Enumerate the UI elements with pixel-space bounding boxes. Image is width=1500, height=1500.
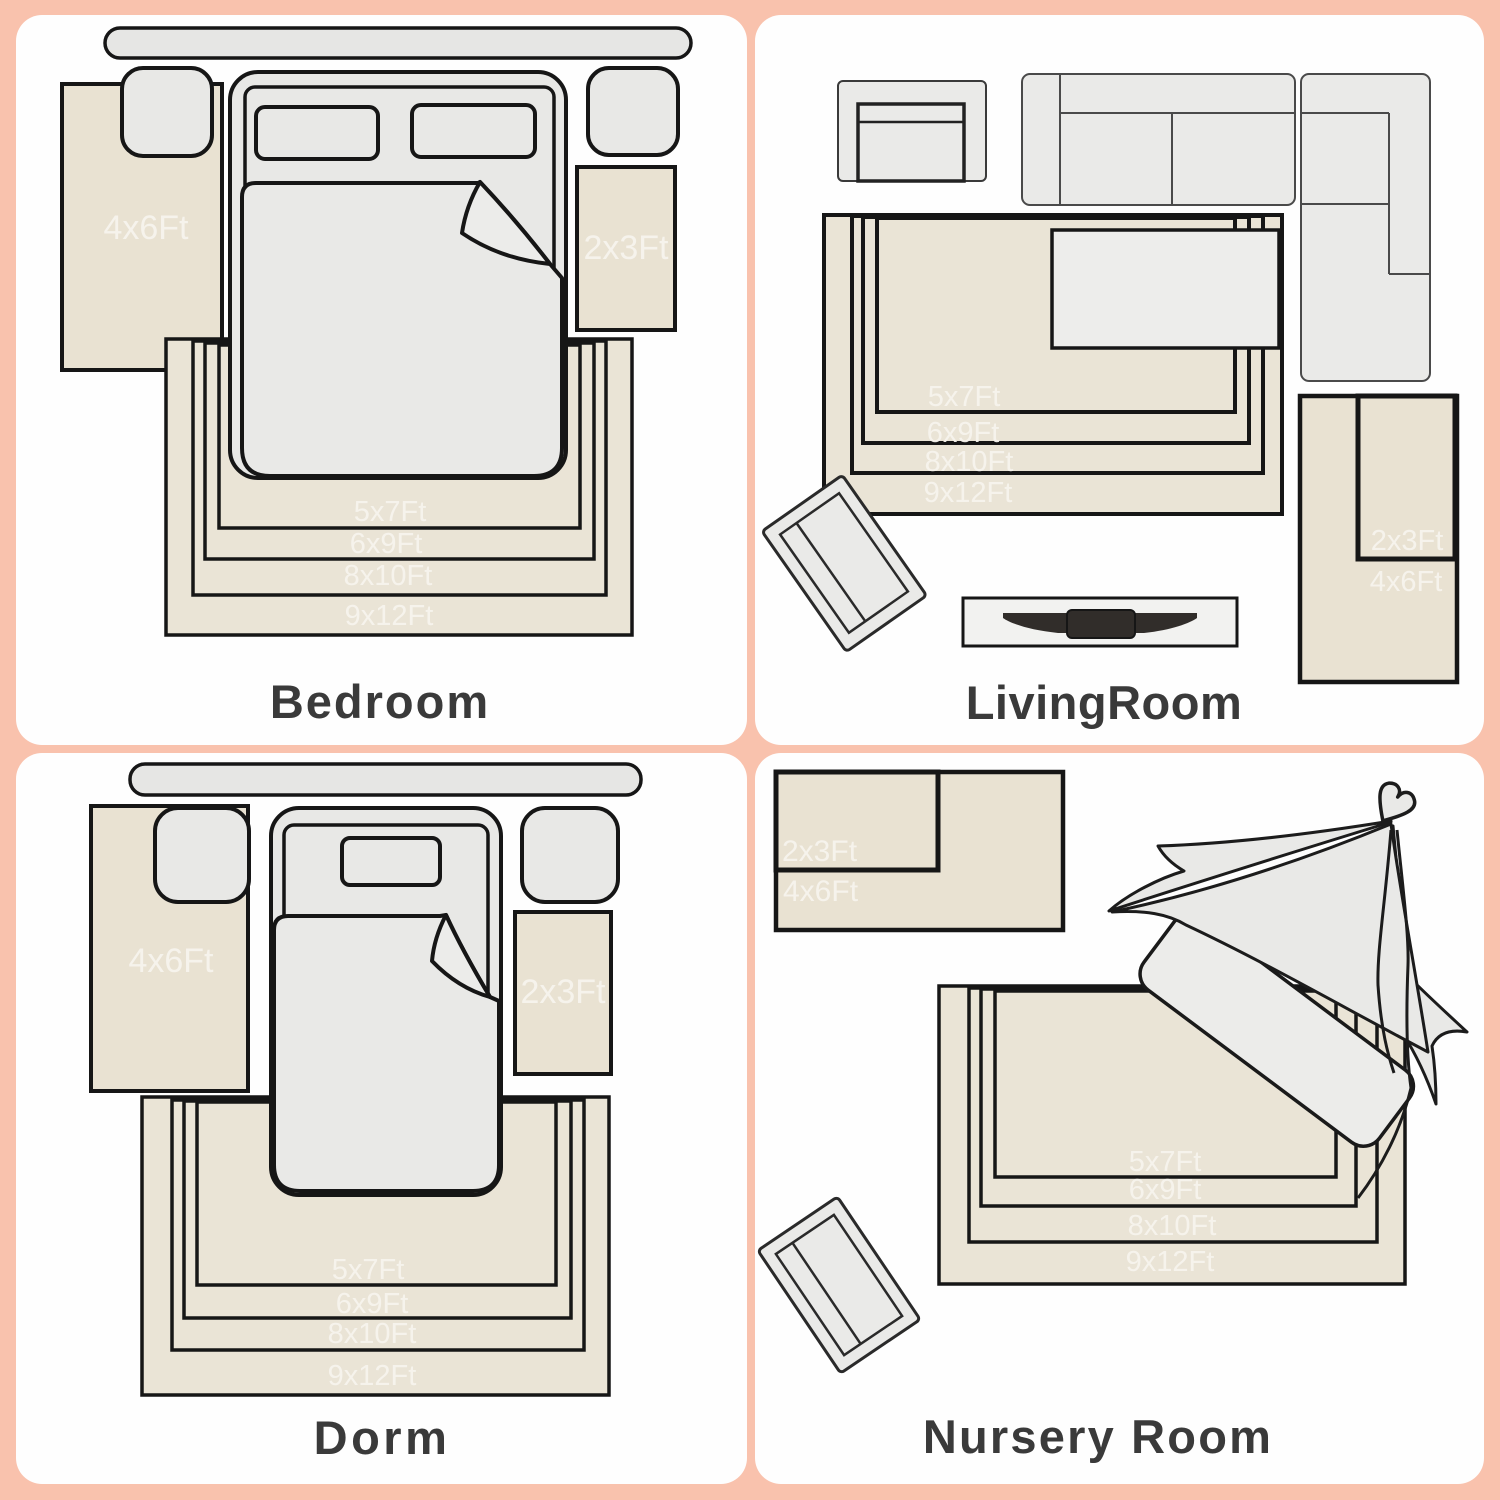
svg-text:6x9Ft: 6x9Ft (1129, 1174, 1202, 1206)
svg-text:4x6Ft: 4x6Ft (103, 209, 189, 247)
svg-text:2x3Ft: 2x3Ft (782, 835, 858, 868)
svg-text:6x9Ft: 6x9Ft (336, 1288, 409, 1320)
svg-text:6x9Ft: 6x9Ft (350, 528, 423, 560)
svg-text:8x10Ft: 8x10Ft (344, 560, 433, 592)
svg-text:2x3Ft: 2x3Ft (1371, 525, 1444, 557)
svg-text:9x12Ft: 9x12Ft (1126, 1246, 1215, 1278)
svg-text:Bedroom: Bedroom (270, 675, 490, 728)
svg-text:8x10Ft: 8x10Ft (925, 446, 1014, 478)
svg-text:9x12Ft: 9x12Ft (328, 1360, 417, 1392)
svg-text:LivingRoom: LivingRoom (966, 676, 1243, 729)
svg-text:4x6Ft: 4x6Ft (783, 875, 859, 908)
svg-text:2x3Ft: 2x3Ft (583, 229, 669, 267)
svg-text:5x7Ft: 5x7Ft (332, 1254, 405, 1286)
svg-text:4x6Ft: 4x6Ft (1370, 566, 1443, 598)
svg-text:9x12Ft: 9x12Ft (924, 477, 1013, 509)
svg-text:4x6Ft: 4x6Ft (128, 942, 214, 980)
svg-text:5x7Ft: 5x7Ft (928, 381, 1001, 413)
svg-text:8x10Ft: 8x10Ft (328, 1318, 417, 1350)
svg-text:5x7Ft: 5x7Ft (354, 496, 427, 528)
svg-text:6x9Ft: 6x9Ft (927, 417, 1000, 449)
svg-text:Nursery Room: Nursery Room (923, 1410, 1273, 1463)
svg-text:2x3Ft: 2x3Ft (520, 973, 606, 1011)
svg-text:8x10Ft: 8x10Ft (1128, 1210, 1217, 1242)
svg-text:Dorm: Dorm (314, 1411, 451, 1464)
svg-text:9x12Ft: 9x12Ft (345, 600, 434, 632)
